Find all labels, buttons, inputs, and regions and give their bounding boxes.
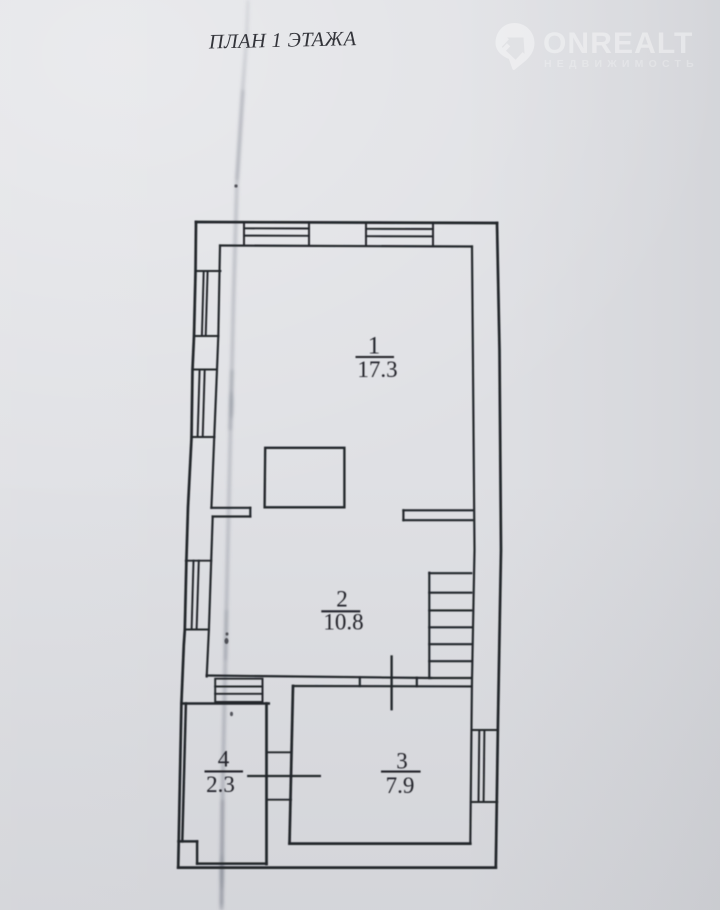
svg-text:ПЛАН 1 ЭТАЖА: ПЛАН 1 ЭТАЖА (208, 28, 357, 53)
svg-text:10.8: 10.8 (323, 610, 363, 635)
svg-text:2: 2 (336, 587, 348, 612)
svg-text:4: 4 (218, 747, 230, 772)
svg-text:1: 1 (368, 333, 381, 360)
svg-text:17.3: 17.3 (357, 357, 397, 382)
svg-text:7.9: 7.9 (386, 773, 415, 798)
svg-text:3: 3 (396, 749, 408, 774)
svg-text:2.3: 2.3 (206, 772, 235, 797)
svg-text:НЕДВИЖИМОСТЬ: НЕДВИЖИМОСТЬ (544, 58, 699, 70)
svg-text:ONREALT: ONREALT (543, 27, 693, 60)
